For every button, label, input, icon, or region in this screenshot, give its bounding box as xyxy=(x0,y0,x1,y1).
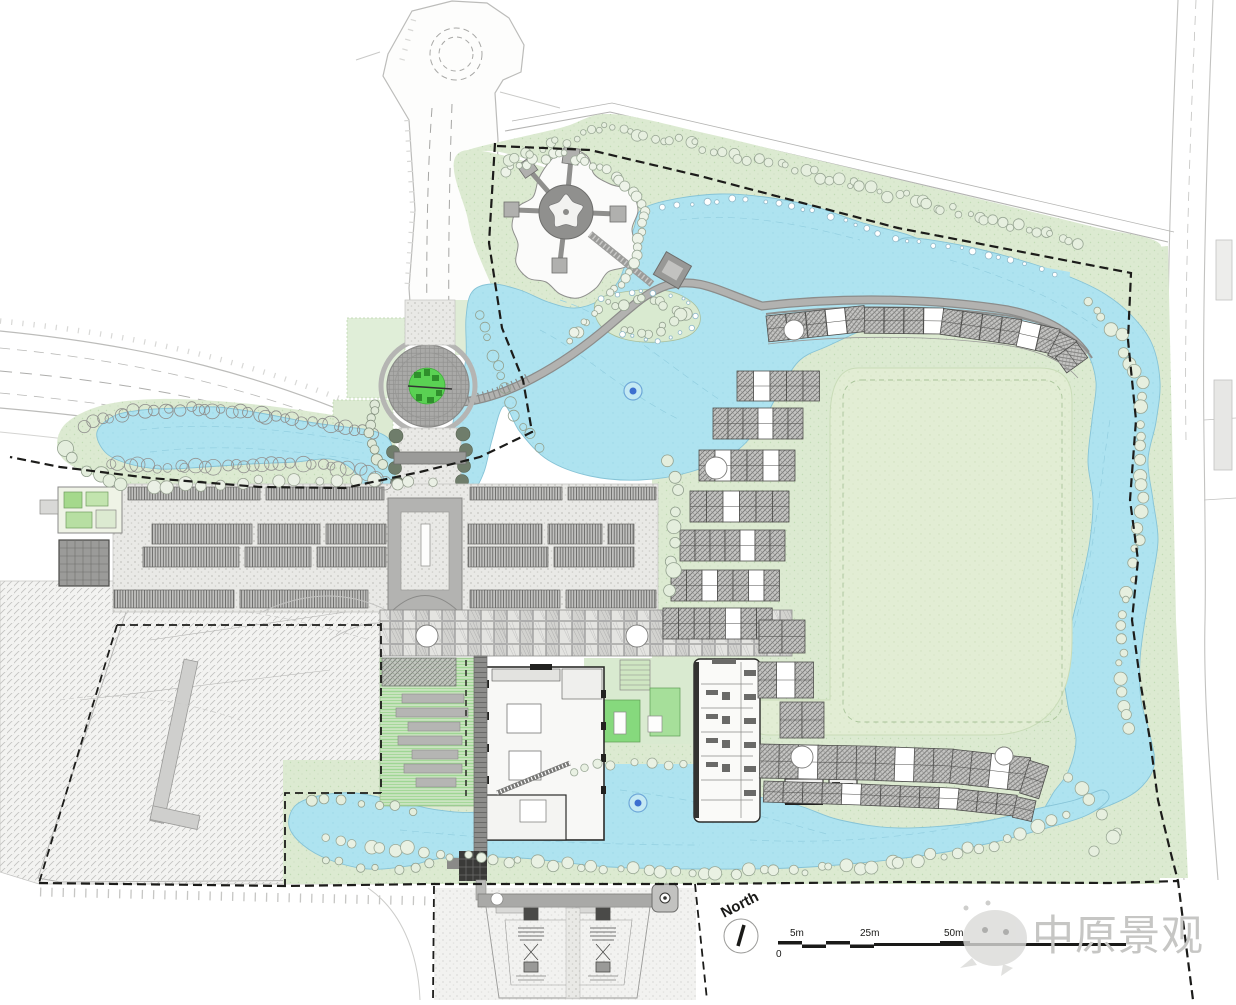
svg-text:5m: 5m xyxy=(790,928,804,939)
svg-text:中原景观: 中原景观 xyxy=(1032,912,1204,959)
svg-text:25m: 25m xyxy=(860,928,879,939)
svg-text:50m: 50m xyxy=(944,928,963,939)
svg-text:0: 0 xyxy=(776,949,782,960)
